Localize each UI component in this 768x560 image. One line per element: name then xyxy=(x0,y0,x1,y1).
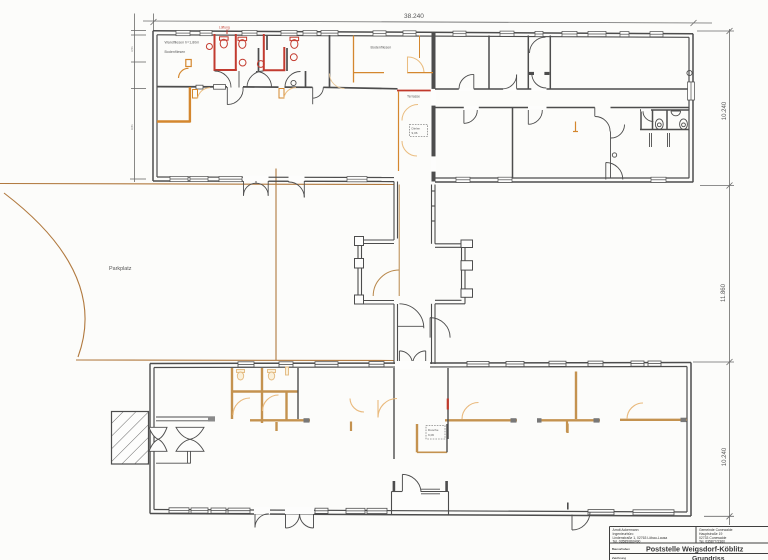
svg-text:Bodenfliesen: Bodenfliesen xyxy=(371,46,392,50)
svg-text:Grundriss: Grundriss xyxy=(692,556,725,560)
svg-text:Poststelle Weigsdorf-Köblitz: Poststelle Weigsdorf-Köblitz xyxy=(646,545,744,554)
svg-text:10.240: 10.240 xyxy=(722,447,728,466)
svg-text:Bodenfliesen: Bodenfliesen xyxy=(165,50,186,54)
svg-text:Tel. 03585/860490: Tel. 03585/860490 xyxy=(613,540,641,544)
svg-text:3,51: 3,51 xyxy=(130,46,134,52)
svg-text:Lüftung: Lüftung xyxy=(219,26,230,30)
svg-text:Zeichnung: Zeichnung xyxy=(612,556,626,560)
svg-text:38.240: 38.240 xyxy=(404,13,424,20)
svg-text:9,06: 9,06 xyxy=(428,433,434,437)
svg-text:Dusche: Dusche xyxy=(428,428,439,432)
svg-text:9,81: 9,81 xyxy=(130,124,134,130)
svg-text:Tel. 035877/2360: Tel. 035877/2360 xyxy=(699,540,725,544)
svg-text:Parkplatz: Parkplatz xyxy=(109,266,132,272)
svg-text:Terrasse: Terrasse xyxy=(407,95,420,99)
svg-text:Dielen: Dielen xyxy=(412,127,421,131)
svg-text:Wandfliesen h=1,80m: Wandfliesen h=1,80m xyxy=(165,41,200,45)
svg-text:10.240: 10.240 xyxy=(722,101,728,120)
svg-text:Bauvorhaben: Bauvorhaben xyxy=(612,547,630,551)
svg-text:11.860: 11.860 xyxy=(721,283,727,302)
svg-text:9,06: 9,06 xyxy=(412,131,418,135)
